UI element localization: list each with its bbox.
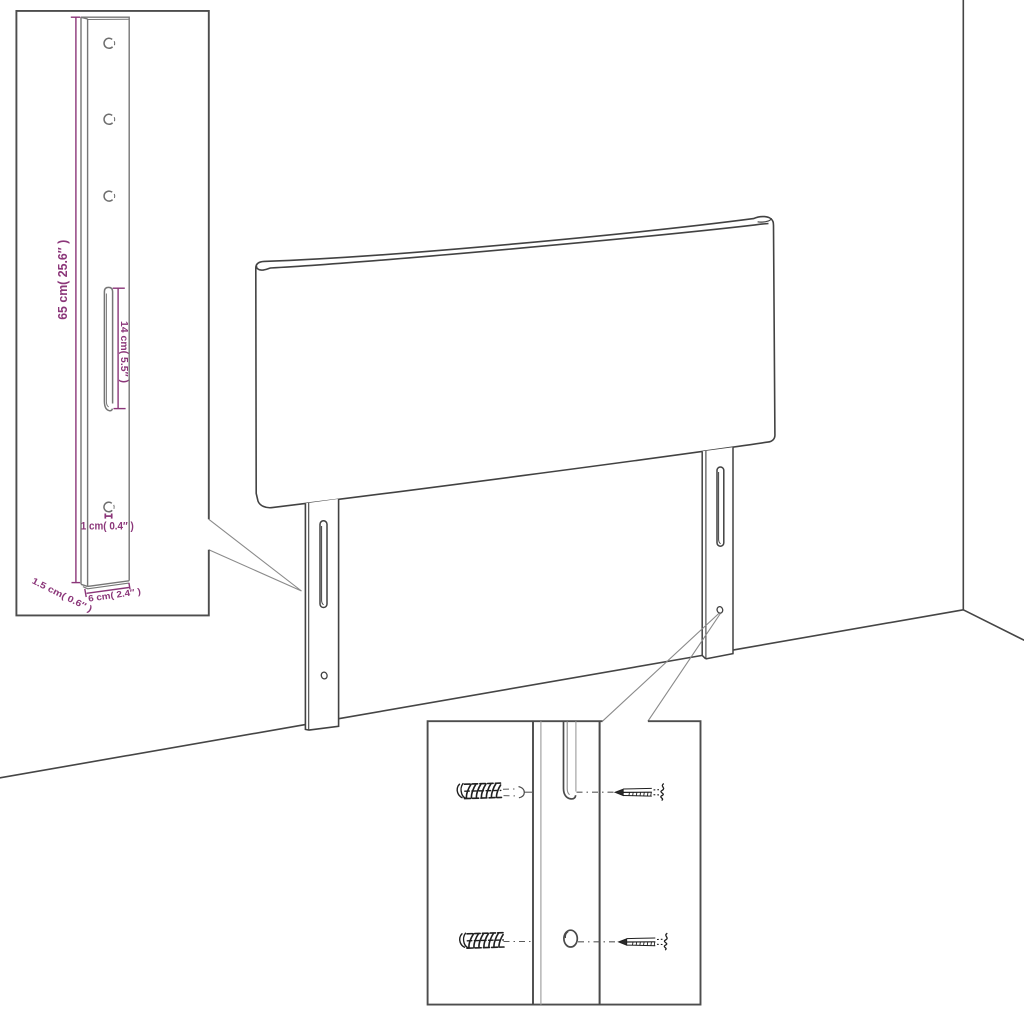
svg-text:65 cm( 25.6″ ): 65 cm( 25.6″ ) — [55, 240, 70, 320]
svg-text:14 cm( 5.5″ ): 14 cm( 5.5″ ) — [118, 321, 130, 383]
svg-text:1 cm( 0.4″ ): 1 cm( 0.4″ ) — [81, 520, 134, 532]
